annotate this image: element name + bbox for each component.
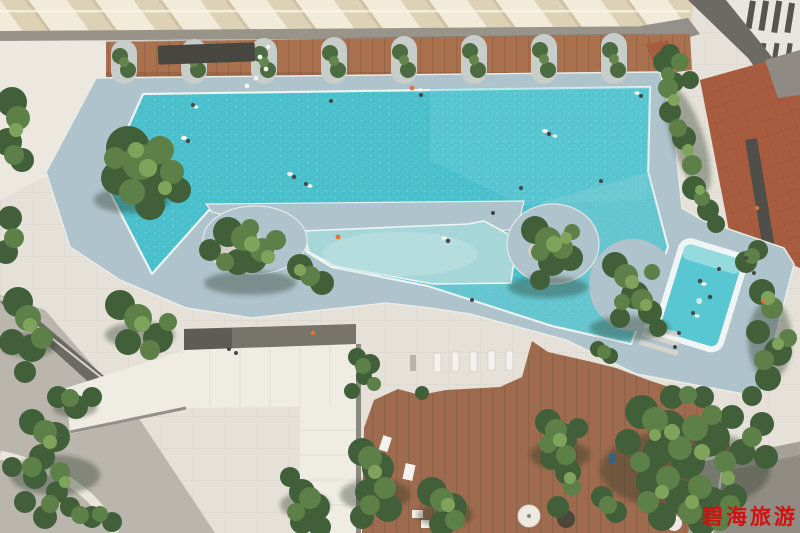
pavilion-dark-strip-end <box>184 328 232 352</box>
gray-lounger <box>410 355 416 371</box>
pool-aerial-photo: 碧海旅游 <box>0 0 800 533</box>
roof-ridge <box>0 10 690 12</box>
aerial-scene: 碧海旅游 <box>0 0 800 533</box>
shallow-highlight <box>322 232 478 276</box>
umbrella-pole <box>527 514 531 518</box>
watermark-text: 碧海旅游 <box>701 505 798 529</box>
pergola-roof <box>158 42 256 64</box>
